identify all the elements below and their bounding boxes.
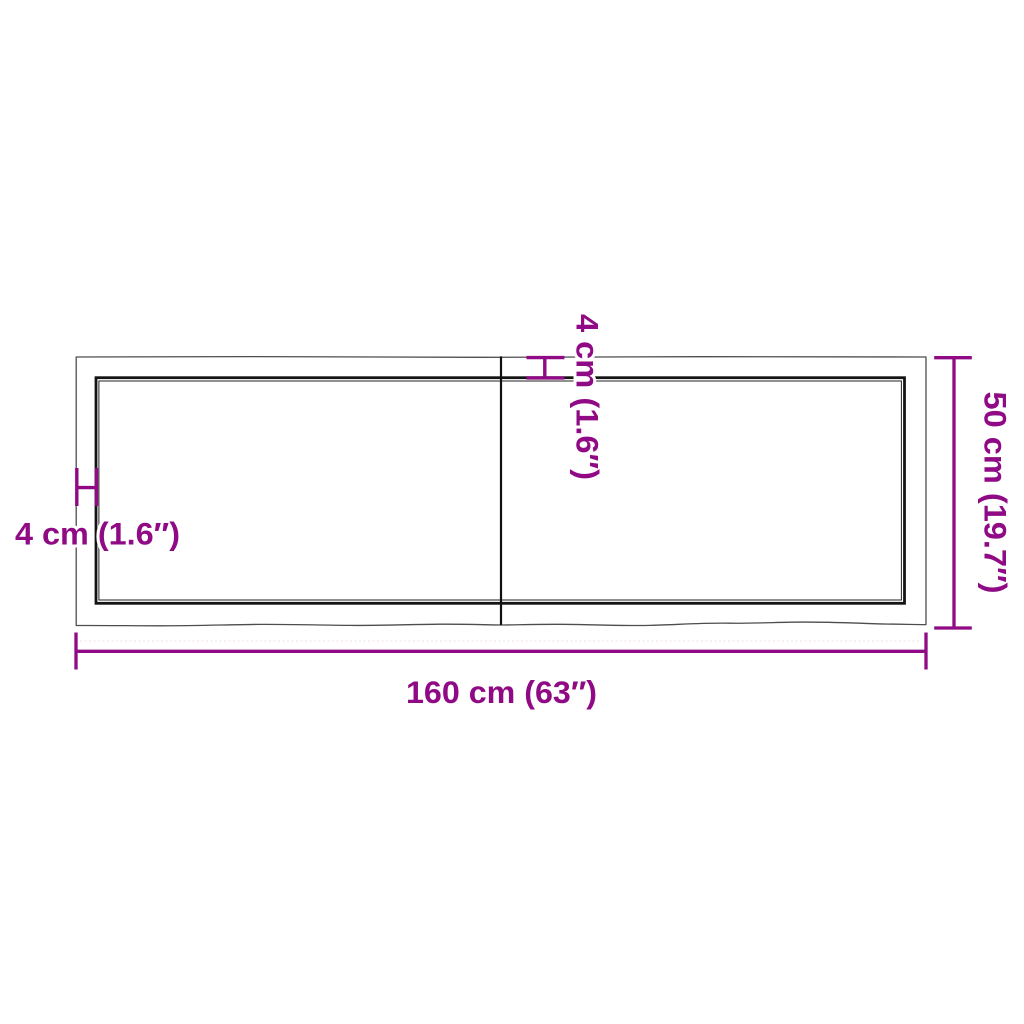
svg-text:50 cm (19.7″): 50 cm (19.7″) — [978, 392, 1014, 594]
svg-text:4 cm (1.6″): 4 cm (1.6″) — [15, 516, 180, 552]
svg-text:4 cm (1.6″): 4 cm (1.6″) — [570, 314, 606, 480]
svg-text:160 cm (63″): 160 cm (63″) — [406, 674, 597, 710]
